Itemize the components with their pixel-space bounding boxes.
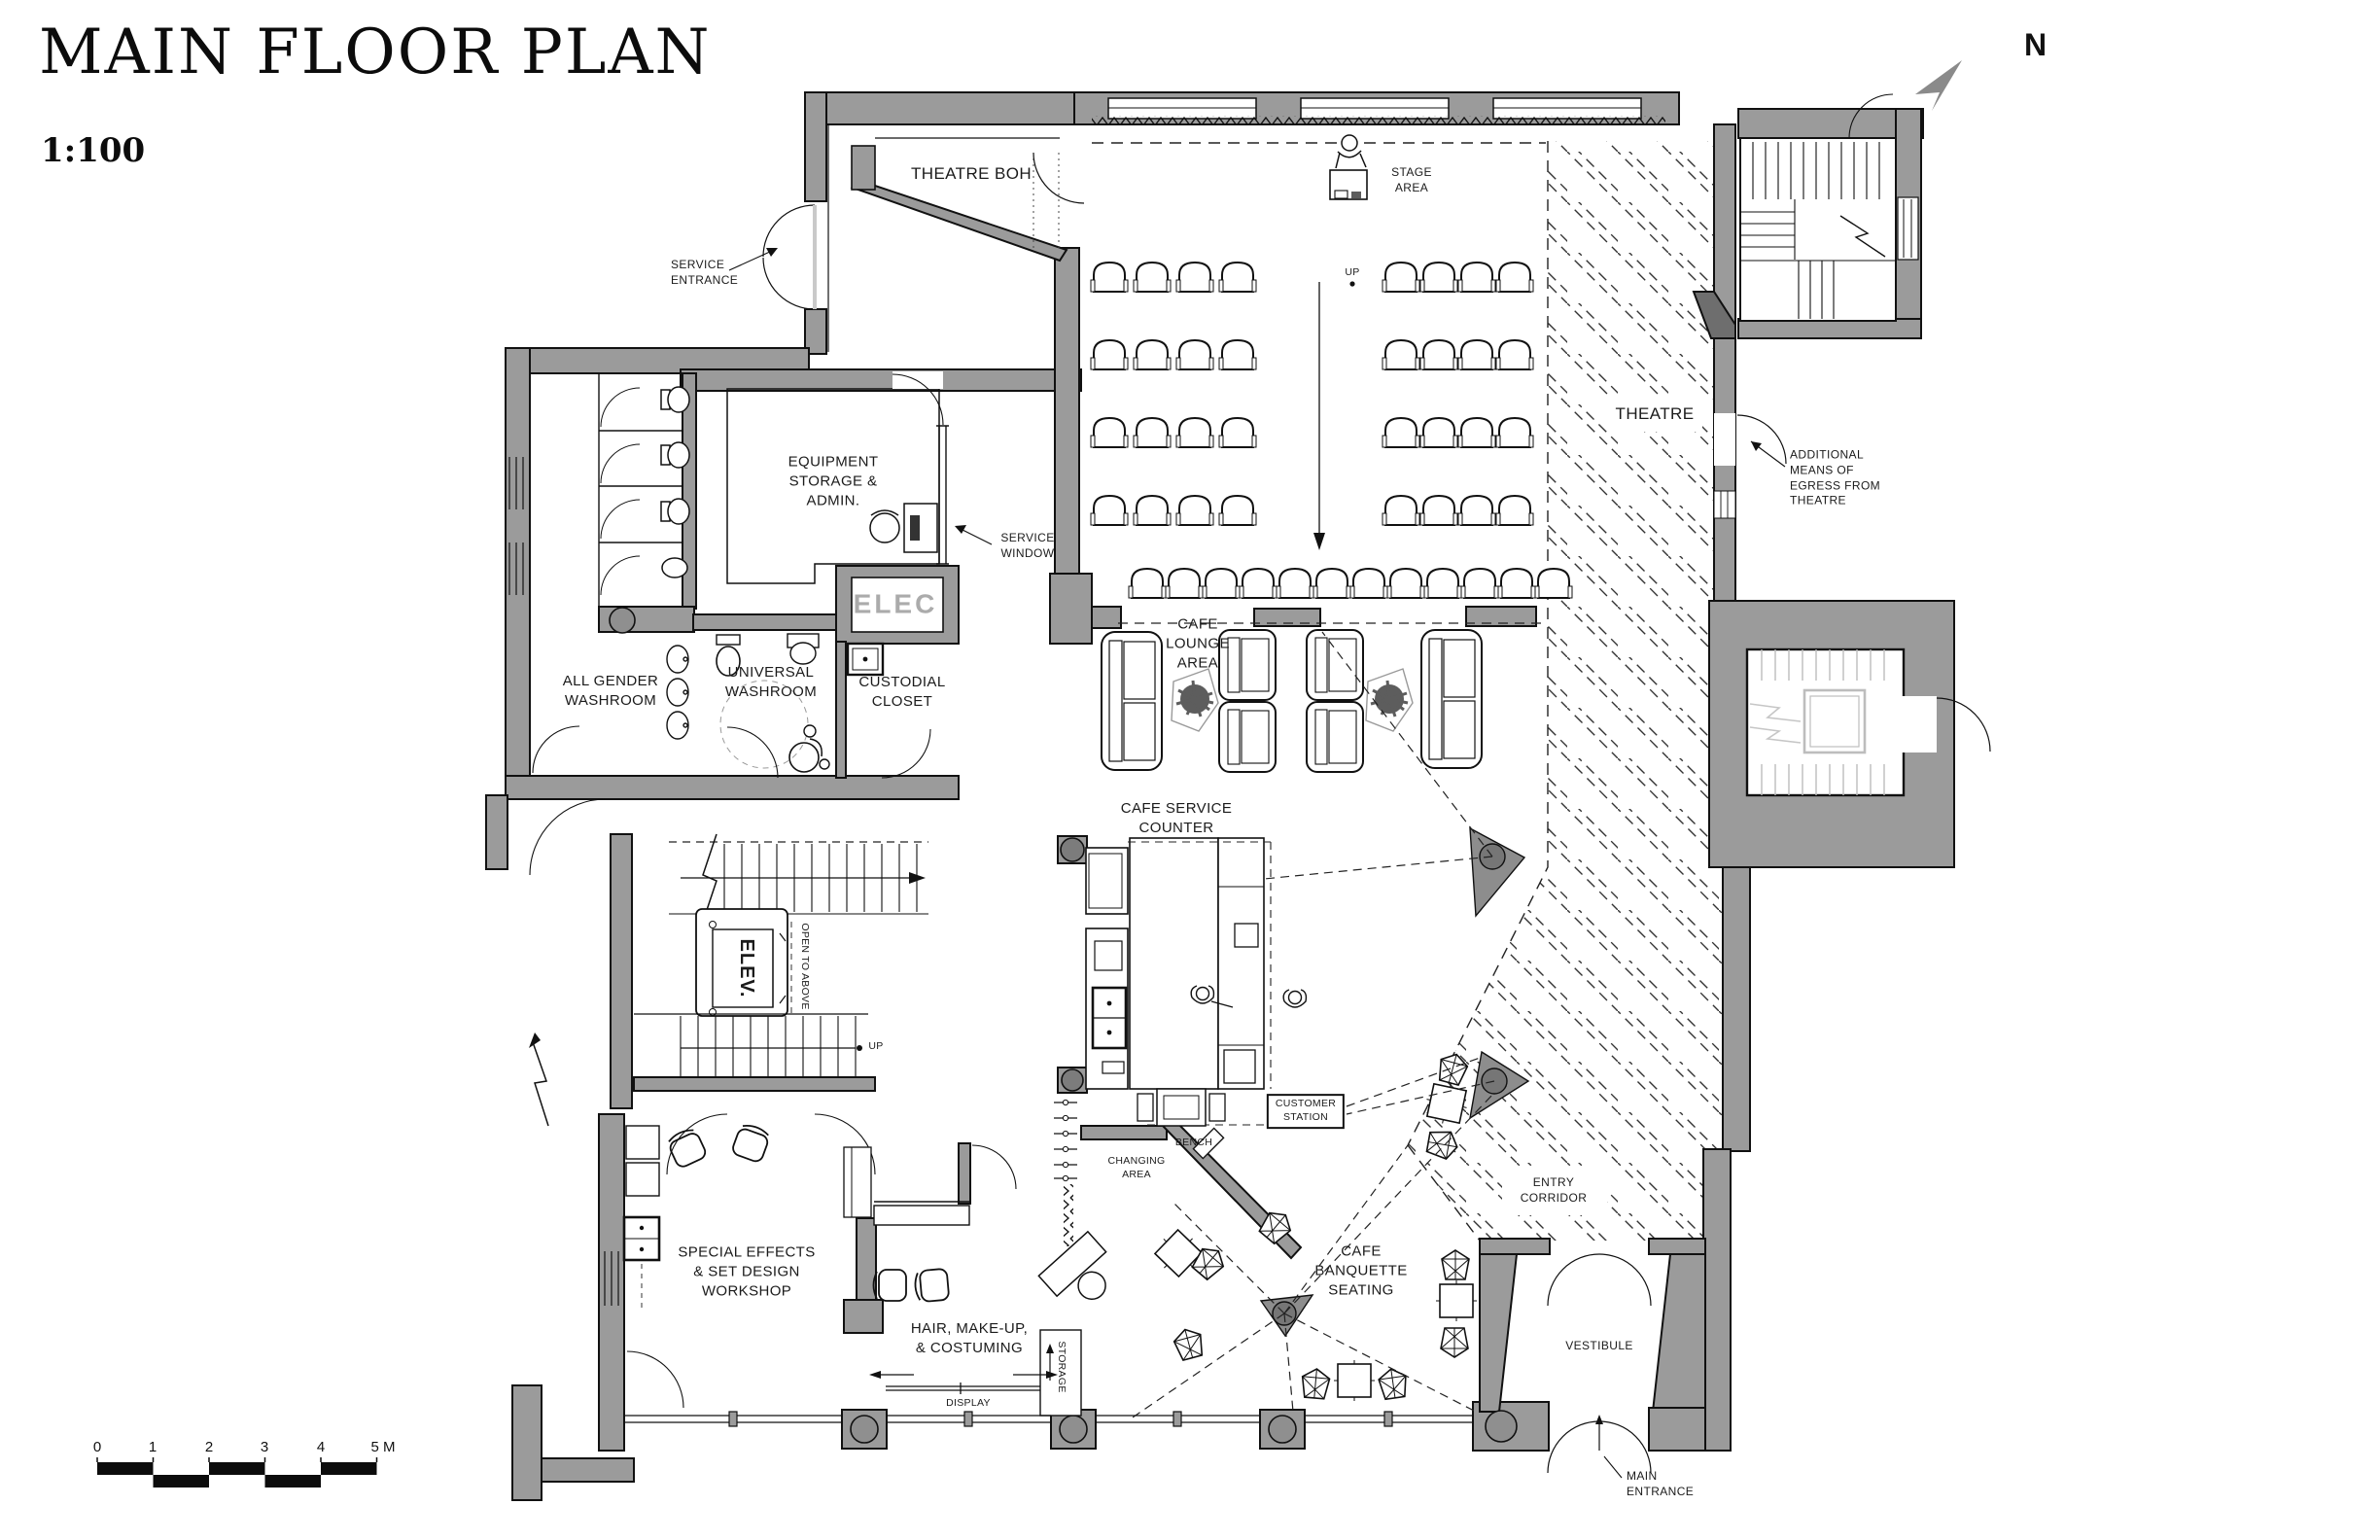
up-arrow-label-theatre: UP xyxy=(1345,266,1359,280)
north-windows xyxy=(1092,98,1665,143)
room-label-elec: ELEC xyxy=(854,587,938,623)
room-label-all-gender-washroom: ALL GENDER WASHROOM xyxy=(563,672,658,711)
note-egress: ADDITIONAL MEANS OF EGRESS FROM THEATRE xyxy=(1790,447,1880,508)
scale-tick-0: 0 xyxy=(93,1439,101,1455)
room-label-theatre: THEATRE xyxy=(1616,403,1695,425)
note-service-window: SERVICE WINDOW xyxy=(1000,531,1054,562)
scale-bar xyxy=(97,1457,377,1487)
north-arrow-icon xyxy=(1915,60,1962,111)
room-label-equipment-storage: EQUIPMENT STORAGE & ADMIN. xyxy=(788,452,879,509)
scale-tick-2: 2 xyxy=(205,1439,213,1455)
cafe-service-counter xyxy=(1086,838,1306,1126)
room-label-vestibule: VESTIBULE xyxy=(1565,1339,1633,1354)
note-service-entrance: SERVICE ENTRANCE xyxy=(671,258,738,289)
room-label-workshop: SPECIAL EFFECTS & SET DESIGN WORKSHOP xyxy=(678,1242,815,1300)
room-label-custodial-closet: CUSTODIAL CLOSET xyxy=(858,673,945,712)
up-arrow-label-stair: UP xyxy=(868,1040,883,1054)
vestibule-doors xyxy=(1548,1254,1651,1478)
changing-curtain-zigzag xyxy=(1064,1184,1073,1246)
stage-presenter xyxy=(1330,135,1367,199)
room-label-entry-corridor: ENTRY CORRIDOR xyxy=(1521,1175,1588,1207)
note-open-to-above: OPEN TO ABOVE xyxy=(797,923,811,1009)
theatre-boh xyxy=(828,124,1084,352)
page-title: MAIN FLOOR PLAN xyxy=(39,21,712,84)
room-label-elevator: ELEV. xyxy=(734,939,759,998)
room-label-stage-area: STAGE AREA xyxy=(1391,165,1432,196)
theatre-aisle xyxy=(1313,281,1355,550)
floor-plan-canvas: MAIN FLOOR PLAN 1:100 N THEATRE BOH STAG… xyxy=(0,0,2380,1540)
north-label: N xyxy=(2024,29,2047,60)
room-label-changing-area: CHANGING AREA xyxy=(1108,1155,1166,1182)
room-label-cafe-service-counter: CAFE SERVICE COUNTER xyxy=(1121,799,1233,838)
room-label-theatre-boh: THEATRE BOH xyxy=(911,163,1032,185)
theatre-seating xyxy=(1091,262,1572,598)
elevator-stairs xyxy=(634,834,928,1077)
note-bench: BENCH xyxy=(1175,1137,1212,1150)
room-label-customer-station: CUSTOMER STATION xyxy=(1267,1094,1345,1129)
theatre-egress-door xyxy=(1714,413,1786,518)
structural-columns xyxy=(610,608,1528,1443)
room-label-cafe-lounge: CAFE LOUNGE AREA xyxy=(1166,614,1230,672)
note-main-entrance: MAIN ENTRANCE xyxy=(1627,1469,1694,1500)
drawing-scale: 1:100 xyxy=(41,134,145,167)
scale-tick-4: 4 xyxy=(317,1439,325,1455)
room-label-hair-makeup: HAIR, MAKE-UP, & COSTUMING xyxy=(911,1319,1028,1358)
scale-tick-5: 5 M xyxy=(370,1439,395,1455)
note-display: DISPLAY xyxy=(946,1397,991,1411)
room-label-universal-washroom: UNIVERSAL WASHROOM xyxy=(725,663,817,702)
scale-tick-3: 3 xyxy=(261,1439,268,1455)
room-label-cafe-banquette: CAFE BANQUETTE SEATING xyxy=(1314,1242,1407,1299)
universal-washroom-fixtures xyxy=(717,634,829,778)
stage-back-zigzag xyxy=(1092,116,1665,125)
scale-tick-1: 1 xyxy=(149,1439,157,1455)
floor-plan-drawing xyxy=(0,0,2380,1540)
service-entrance-doors xyxy=(729,205,815,309)
room-label-storage: STORAGE xyxy=(1054,1341,1067,1392)
